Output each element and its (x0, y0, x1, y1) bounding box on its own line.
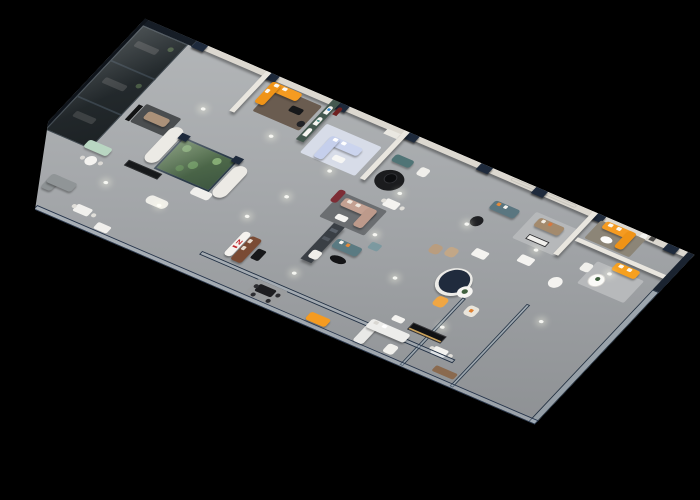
floorplan-3d-view: N (0, 19, 695, 425)
showroom-render-canvas: N (0, 0, 700, 500)
